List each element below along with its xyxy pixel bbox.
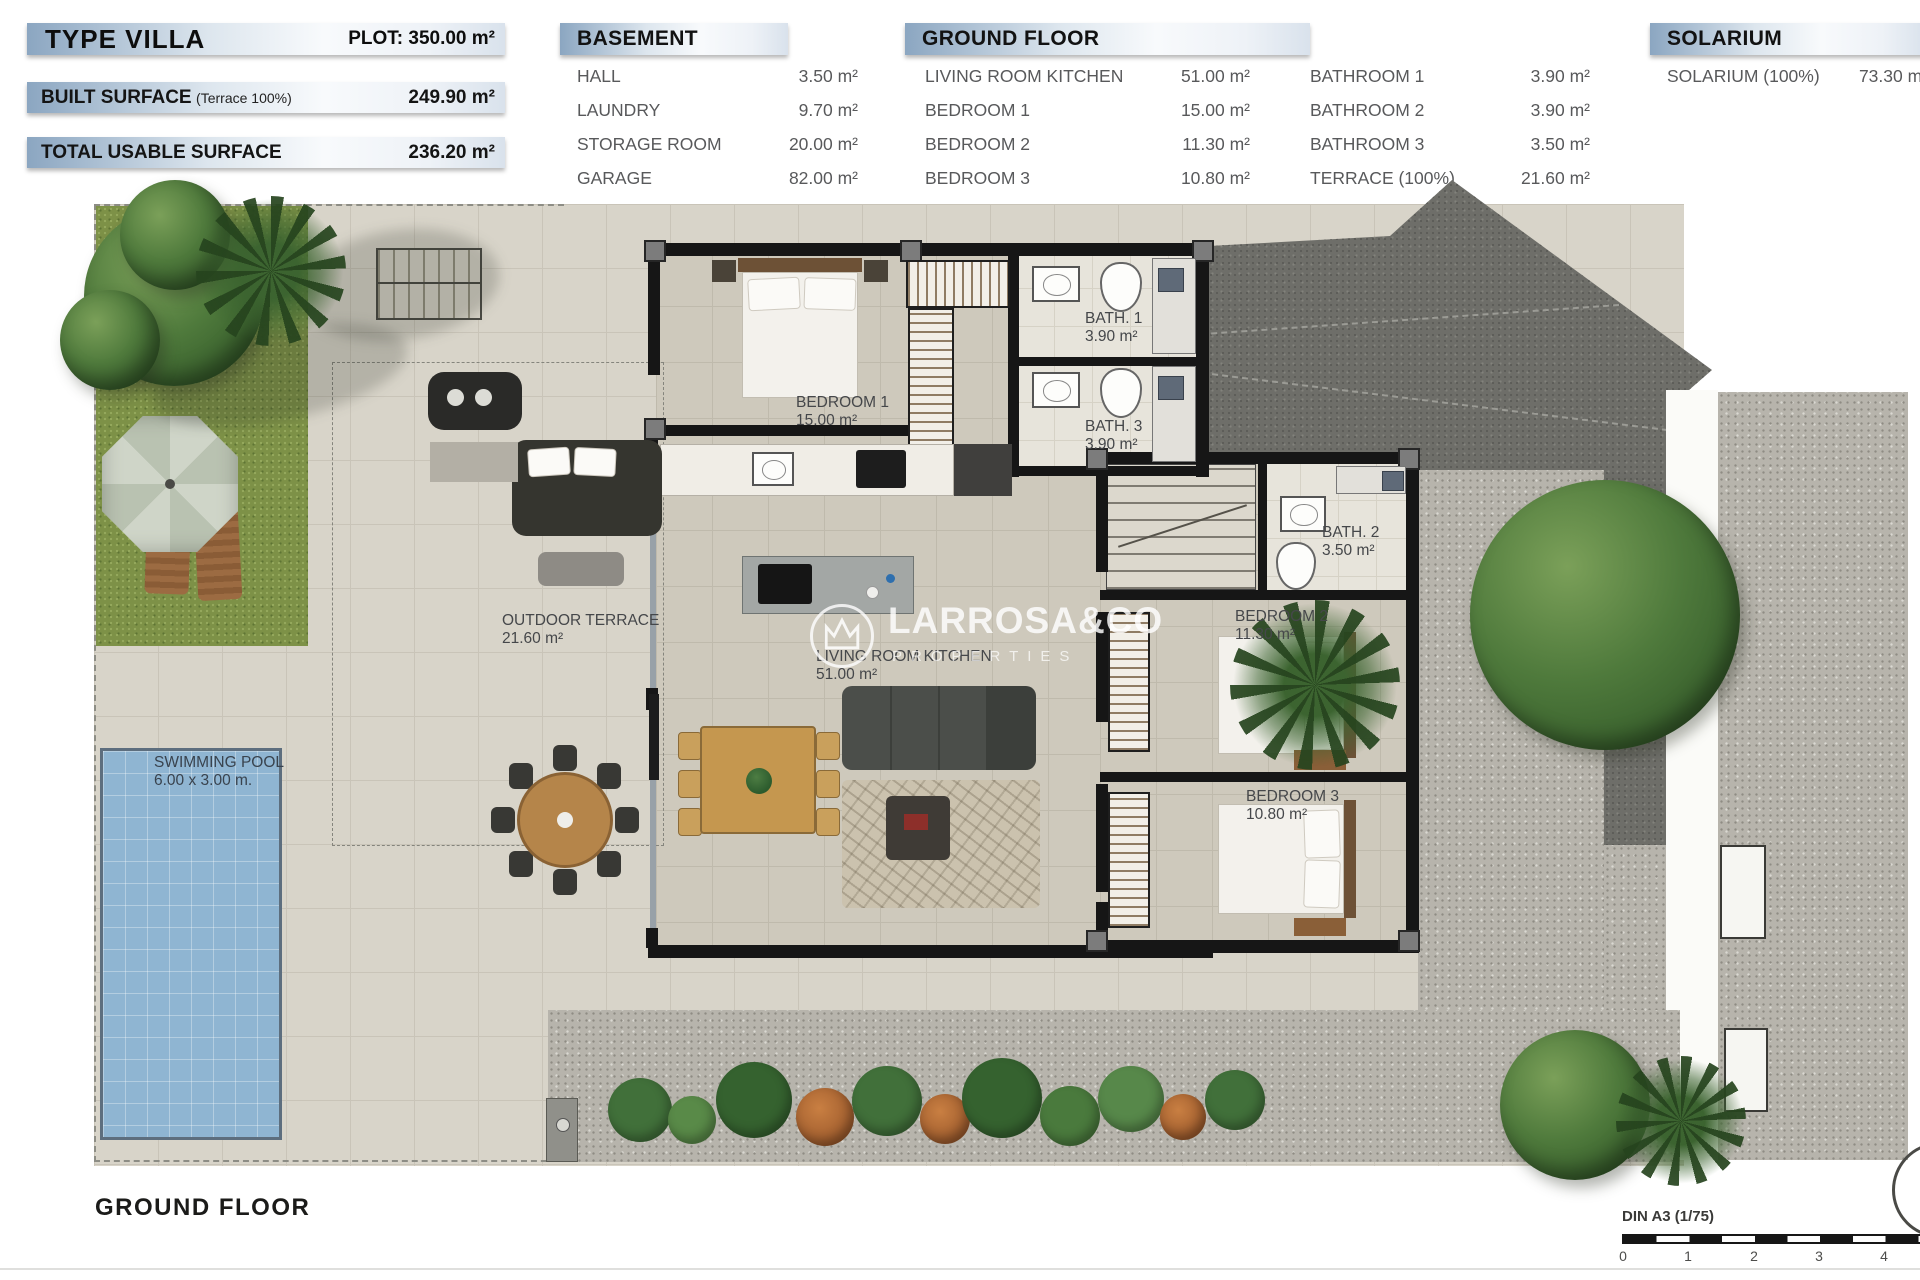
- bush: [668, 1096, 716, 1144]
- shower-head: [1382, 471, 1404, 491]
- watermark-brand: LARROSA&CO: [888, 600, 1163, 642]
- nightstand: [712, 260, 736, 282]
- kitchen-sink: [752, 452, 794, 486]
- pillar: [1398, 930, 1420, 952]
- scale-label: DIN A3 (1/75): [1622, 1208, 1714, 1225]
- room-area: 15.00 m²: [796, 412, 889, 430]
- patio-chair: [509, 763, 533, 789]
- room-label-bath3: BATH. 3 3.90 m²: [1085, 418, 1142, 455]
- plan-title: GROUND FLOOR: [95, 1194, 310, 1222]
- room-area: 3.90 m²: [1085, 328, 1142, 346]
- bush: [608, 1078, 672, 1142]
- kitchen-counter: [660, 444, 954, 496]
- wall: [1096, 784, 1108, 892]
- stair-rail: [1118, 504, 1247, 548]
- room-label-bedroom3: BEDROOM 3 10.80 m²: [1246, 788, 1339, 825]
- dining-chair: [678, 732, 702, 760]
- island-faucet: [886, 574, 895, 583]
- patio-chair: [597, 763, 621, 789]
- patio-table-plate: [557, 812, 573, 828]
- tree: [60, 290, 160, 390]
- bush: [852, 1066, 922, 1136]
- bench-cushion: [475, 389, 492, 406]
- room-name: BATH. 1: [1085, 310, 1142, 328]
- dining-chair: [678, 770, 702, 798]
- dining-chair: [678, 808, 702, 836]
- tv-unit: [649, 694, 659, 780]
- bush: [1040, 1086, 1100, 1146]
- sink: [1032, 372, 1080, 408]
- sink: [1280, 496, 1326, 532]
- floor-plan-canvas: BEDROOM 1 15.00 m² BATH. 1 3.90 m² BATH.…: [0, 0, 1920, 1280]
- sofa: [842, 686, 1036, 770]
- doormat: [430, 442, 518, 482]
- wall: [1096, 452, 1418, 464]
- dining-chair: [816, 770, 840, 798]
- palm-tree: [196, 196, 346, 346]
- room-name: BEDROOM 1: [796, 394, 889, 412]
- garden-lamp: [556, 1118, 570, 1132]
- patio-chair: [597, 851, 621, 877]
- swimming-pool: [100, 748, 282, 1140]
- wall: [1100, 772, 1408, 782]
- scale-tick: 3: [1811, 1248, 1827, 1264]
- room-area: 10.80 m²: [1246, 806, 1339, 824]
- bed-pillow: [803, 277, 856, 311]
- wall: [648, 243, 1210, 256]
- bed-pillow: [1303, 859, 1341, 908]
- floor-plan-page: TYPE VILLA PLOT: 350.00 m² BUILT SURFACE…: [0, 0, 1920, 1280]
- room-name: BATH. 3: [1085, 418, 1142, 436]
- wall: [648, 945, 1213, 958]
- outdoor-cushion: [573, 447, 616, 477]
- oven-column: [954, 444, 1012, 496]
- scale-tick: 4: [1876, 1248, 1892, 1264]
- wall: [1018, 466, 1208, 476]
- utility-box: [1720, 845, 1766, 939]
- bush: [962, 1058, 1042, 1138]
- pillar: [900, 240, 922, 262]
- dining-chair: [816, 732, 840, 760]
- patio-chair: [553, 745, 577, 771]
- wall: [1406, 452, 1419, 953]
- bed-bench: [1294, 918, 1346, 936]
- bench-cushion: [447, 389, 464, 406]
- scale-indicator: DIN A3 (1/75) 0 1 2 3 4: [1622, 1208, 1920, 1268]
- pillar: [644, 240, 666, 262]
- footer-rule: [0, 1268, 1920, 1270]
- cooktop: [856, 450, 906, 488]
- table-plant: [746, 768, 772, 794]
- bush: [716, 1062, 792, 1138]
- coffee-table-book: [904, 814, 928, 830]
- shower-head: [1158, 376, 1184, 400]
- watermark-sub: PROPERTIES: [892, 648, 1078, 665]
- ottoman: [538, 552, 624, 586]
- wardrobe: [1108, 792, 1150, 928]
- patio-chair: [615, 807, 639, 833]
- watermark-logo-icon: [810, 604, 874, 668]
- door-jamb: [646, 928, 658, 948]
- flowering-bush: [1160, 1094, 1206, 1140]
- bed-pillow: [747, 277, 801, 312]
- wall: [1258, 455, 1267, 595]
- island-cooktop: [758, 564, 812, 604]
- room-label-bedroom1: BEDROOM 1 15.00 m²: [796, 394, 889, 431]
- patio-chair: [553, 869, 577, 895]
- room-area: 11.30 m²: [1235, 626, 1328, 644]
- wall: [1018, 357, 1198, 366]
- scale-tick: 0: [1615, 1248, 1631, 1264]
- bed-headboard: [1344, 800, 1356, 918]
- patio-chair: [509, 851, 533, 877]
- watermark: LARROSA&CO PROPERTIES: [810, 598, 1170, 682]
- room-label-bath1: BATH. 1 3.90 m²: [1085, 310, 1142, 347]
- room-name: BEDROOM 2: [1235, 608, 1328, 626]
- bush: [1098, 1066, 1164, 1132]
- room-name: BEDROOM 3: [1246, 788, 1339, 806]
- palm-tree: [1616, 1056, 1746, 1186]
- shower-head: [1158, 268, 1184, 292]
- tree: [1470, 480, 1740, 750]
- pillar: [644, 418, 666, 440]
- bush: [1205, 1070, 1265, 1130]
- scale-bar: [1622, 1234, 1920, 1244]
- room-size: 6.00 x 3.00 m.: [154, 772, 284, 790]
- outdoor-cushion: [527, 447, 571, 478]
- wall: [648, 243, 660, 375]
- room-name: BATH. 2: [1322, 524, 1379, 542]
- room-name: SWIMMING POOL: [154, 754, 284, 772]
- pillar: [1086, 930, 1108, 952]
- patio-chair: [491, 807, 515, 833]
- scale-tick: 2: [1746, 1248, 1762, 1264]
- room-name: OUTDOOR TERRACE: [502, 612, 659, 630]
- scale-tick: 1: [1680, 1248, 1696, 1264]
- bed-headboard: [738, 258, 862, 272]
- room-area: 21.60 m²: [502, 630, 659, 648]
- room-area: 3.90 m²: [1085, 436, 1142, 454]
- sink: [1032, 266, 1080, 302]
- nightstand: [864, 260, 888, 282]
- room-label-bedroom2: BEDROOM 2 11.30 m²: [1235, 608, 1328, 645]
- room-label-bath2: BATH. 2 3.50 m²: [1322, 524, 1379, 561]
- room-label-outdoor-terrace: OUTDOOR TERRACE 21.60 m²: [502, 612, 659, 649]
- wardrobe: [906, 260, 1010, 308]
- wall: [1096, 464, 1108, 572]
- staircase: [1106, 464, 1256, 590]
- parasol-pole: [165, 479, 175, 489]
- dining-chair: [816, 808, 840, 836]
- flowering-bush: [796, 1088, 854, 1146]
- room-area: 3.50 m²: [1322, 542, 1379, 560]
- room-label-pool: SWIMMING POOL 6.00 x 3.00 m.: [154, 754, 284, 791]
